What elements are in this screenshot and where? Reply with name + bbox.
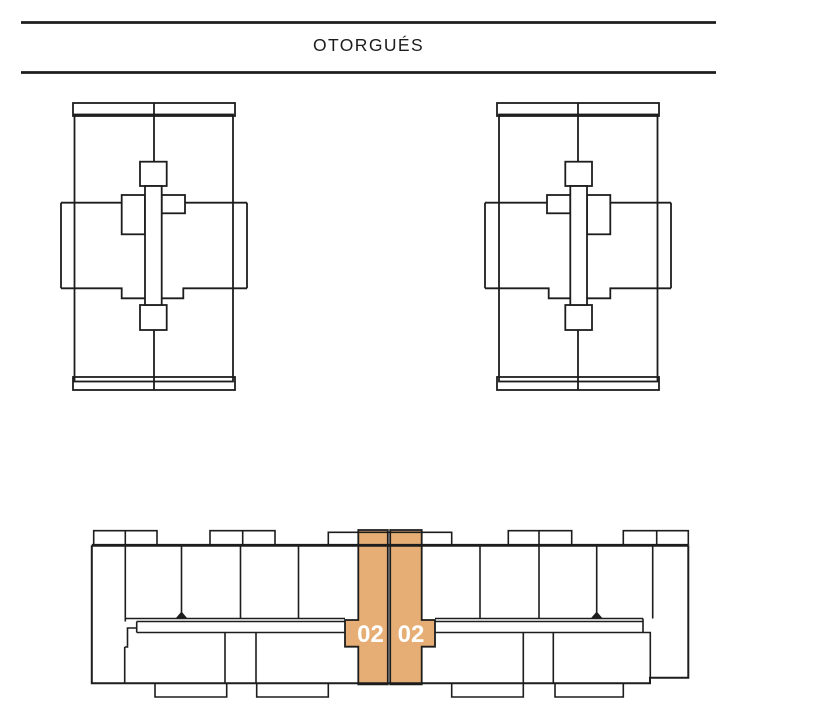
- building-floor-plan: 02 02: [92, 530, 689, 697]
- page-title: OTORGUÉS: [313, 35, 424, 55]
- unit-02-right-highlight[interactable]: [390, 530, 435, 684]
- unit-02-left[interactable]: [345, 530, 388, 684]
- tower-left-footprint[interactable]: [61, 103, 247, 390]
- unit-02-right[interactable]: [390, 530, 435, 684]
- header: OTORGUÉS: [21, 23, 716, 73]
- unit-02-right-label: 02: [398, 621, 425, 648]
- tower-footprints: [61, 103, 671, 390]
- bottom-balconies: [155, 683, 623, 697]
- unit-02-left-label: 02: [357, 621, 384, 648]
- site-plan-canvas: OTORGUÉS: [0, 0, 838, 716]
- stair-core-walls: [225, 633, 553, 684]
- tower-right-footprint[interactable]: [485, 103, 671, 390]
- plan-selector-page: OTORGUÉS: [0, 0, 838, 716]
- unit-02-left-highlight[interactable]: [345, 530, 388, 684]
- unit-divider-walls: [125, 545, 652, 622]
